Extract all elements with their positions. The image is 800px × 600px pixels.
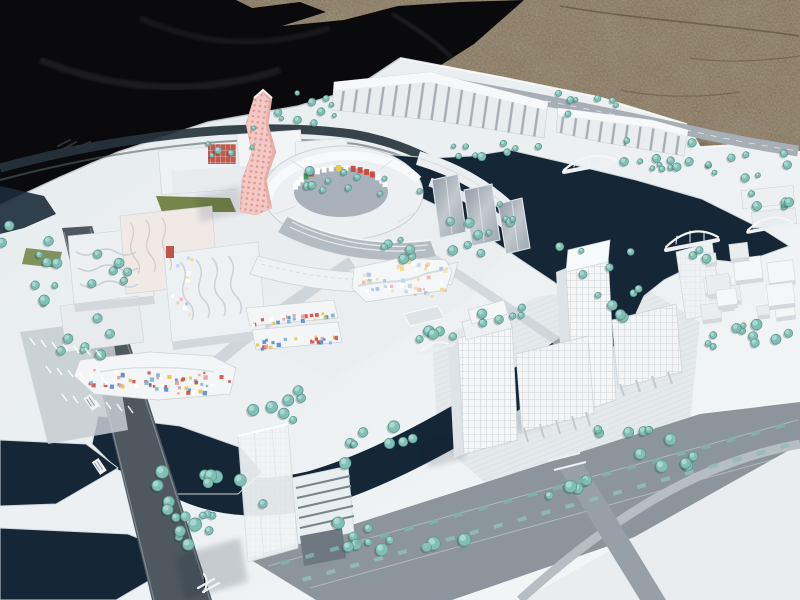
- tree-highlight: [94, 315, 99, 320]
- tree-highlight: [511, 217, 514, 220]
- mosaic-tile: [323, 317, 326, 320]
- tree-highlight: [713, 171, 716, 174]
- cube-roof: [766, 282, 795, 306]
- mosaic-tile: [175, 381, 179, 385]
- mosaic-tile: [117, 376, 120, 379]
- court-tile: [322, 167, 327, 173]
- tree-highlight: [568, 97, 571, 100]
- mosaic-tile: [287, 320, 291, 324]
- tree-highlight: [164, 497, 170, 503]
- cube-roof: [729, 242, 749, 259]
- mosaic-tile: [156, 377, 159, 380]
- tree-highlight: [163, 505, 168, 510]
- tree-highlight: [43, 259, 48, 264]
- mosaic-tile: [189, 376, 192, 379]
- mosaic-tile: [397, 266, 400, 269]
- mosaic-tile: [425, 264, 428, 267]
- court-tile: [329, 166, 334, 172]
- tree-highlight: [784, 162, 788, 166]
- mosaic-tile: [411, 261, 415, 265]
- tree-highlight: [756, 173, 758, 175]
- tree-highlight: [566, 111, 569, 114]
- tree-highlight: [450, 334, 454, 338]
- tree-highlight: [706, 341, 709, 344]
- tree-highlight: [750, 333, 755, 338]
- mosaic-tile: [363, 274, 366, 277]
- mosaic-tile: [256, 343, 260, 347]
- mosaic-tile: [93, 369, 95, 371]
- mosaic-tile: [114, 370, 118, 374]
- mosaic-tile: [187, 256, 190, 259]
- mosaic-tile: [293, 314, 296, 317]
- mosaic-tile: [301, 314, 306, 319]
- tree-highlight: [741, 323, 744, 326]
- red-vent: [166, 246, 174, 258]
- tree-highlight: [115, 259, 120, 264]
- court-tile: [370, 171, 375, 177]
- tree-highlight: [452, 144, 454, 146]
- tree-highlight: [668, 157, 672, 161]
- mosaic-tile: [362, 281, 366, 285]
- mosaic-tile: [310, 314, 314, 318]
- mosaic-tile: [155, 387, 159, 391]
- tree-highlight: [749, 191, 752, 194]
- mosaic-tile: [365, 289, 369, 293]
- tree-highlight: [5, 222, 10, 227]
- tree-highlight: [728, 155, 732, 159]
- mosaic-tile: [439, 267, 443, 271]
- mosaic-tile: [219, 375, 223, 379]
- tree-highlight: [399, 238, 402, 241]
- tree-highlight: [473, 153, 476, 156]
- tree-highlight: [53, 283, 56, 286]
- tree-highlight: [621, 158, 625, 162]
- mosaic-tile: [180, 298, 183, 301]
- tree-highlight: [690, 453, 694, 457]
- mosaic-tile: [261, 318, 264, 321]
- tree-highlight: [625, 138, 628, 141]
- mosaic-tile: [414, 294, 417, 297]
- mosaic-tile: [153, 385, 156, 388]
- tree-highlight: [409, 435, 413, 439]
- mosaic-tile: [184, 386, 188, 390]
- mosaic-tile: [121, 385, 125, 389]
- mosaic-tile: [368, 281, 371, 284]
- tree-highlight: [417, 336, 421, 340]
- mosaic-tile: [294, 337, 297, 340]
- scene-canvas: [0, 0, 800, 600]
- mosaic-tile: [284, 338, 287, 341]
- mosaic-tile: [424, 268, 427, 271]
- tree-highlight: [235, 475, 241, 481]
- tree-highlight: [636, 450, 641, 455]
- tree-highlight: [616, 311, 621, 316]
- tree-highlight: [206, 142, 208, 144]
- tree-highlight: [711, 344, 714, 347]
- tree-highlight: [182, 513, 187, 518]
- tree-highlight: [447, 218, 451, 222]
- tree-highlight: [382, 177, 385, 180]
- mosaic-tile: [375, 287, 379, 291]
- mosaic-tile: [186, 287, 188, 289]
- tree-highlight: [176, 527, 181, 532]
- tree-highlight: [64, 335, 69, 340]
- mosaic-tile: [206, 385, 208, 387]
- tree-highlight: [574, 98, 576, 100]
- tree-highlight: [280, 409, 285, 414]
- mosaic-tile: [414, 286, 418, 290]
- tree-highlight: [321, 187, 324, 190]
- tree-highlight: [752, 320, 757, 325]
- tree-highlight: [153, 481, 159, 487]
- mosaic-tile: [171, 295, 174, 298]
- tree-highlight: [646, 427, 650, 431]
- mosaic-tile: [186, 271, 190, 275]
- tree-highlight: [703, 255, 707, 259]
- tree-highlight: [579, 249, 582, 252]
- mosaic-tile: [228, 380, 231, 383]
- tree-highlight: [360, 428, 365, 433]
- tree-highlight: [690, 252, 694, 256]
- tree-highlight: [206, 527, 210, 531]
- tree-highlight: [513, 146, 516, 149]
- mosaic-tile: [383, 279, 386, 282]
- court-tile: [364, 169, 369, 175]
- court-tile: [299, 176, 304, 182]
- mosaic-tile: [400, 267, 404, 271]
- tree-highlight: [595, 96, 598, 99]
- tree-highlight: [249, 405, 255, 411]
- mosaic-tile: [132, 380, 135, 383]
- mosaic-tile: [167, 375, 171, 379]
- mosaic-tile: [203, 391, 208, 396]
- mosaic-tile: [252, 323, 255, 326]
- tree-highlight: [636, 286, 639, 289]
- mosaic-tile: [371, 288, 374, 291]
- tree-highlight: [173, 514, 177, 518]
- mosaic-tile: [210, 383, 213, 386]
- mosaic-tile: [417, 263, 421, 267]
- mosaic-tile: [147, 371, 150, 374]
- tree-highlight: [697, 247, 701, 251]
- mosaic-tile: [376, 278, 378, 280]
- mosaic-tile: [188, 313, 190, 315]
- tree-highlight: [504, 217, 507, 220]
- mosaic-tile: [427, 275, 431, 279]
- mosaic-tile: [401, 278, 405, 282]
- mosaic-tile: [272, 322, 275, 325]
- tree-highlight: [399, 438, 404, 443]
- mosaic-tile: [315, 337, 319, 341]
- tree-highlight: [475, 231, 479, 235]
- tree-highlight: [121, 278, 125, 282]
- tree-highlight: [352, 442, 355, 445]
- tree-highlight: [210, 154, 212, 156]
- tree-highlight: [742, 174, 746, 178]
- mosaic-tile: [329, 341, 332, 344]
- model-photo: [0, 0, 800, 600]
- tree-highlight: [324, 96, 327, 99]
- mosaic-tile: [161, 384, 164, 387]
- mosaic-tile: [391, 289, 394, 292]
- tree-highlight: [429, 330, 434, 335]
- tree-highlight: [625, 428, 630, 433]
- mosaic-tile: [269, 317, 273, 321]
- mosaic-tile: [128, 379, 131, 382]
- tree-highlight: [334, 518, 340, 524]
- cube-building: [729, 242, 750, 263]
- mosaic-tile: [144, 381, 148, 385]
- tree-highlight: [466, 219, 471, 224]
- tree-highlight: [215, 147, 219, 151]
- tree-highlight: [480, 320, 484, 324]
- tree-highlight: [260, 500, 264, 504]
- tree-highlight: [638, 159, 641, 162]
- tree-highlight: [346, 185, 349, 188]
- mosaic-tile: [269, 346, 273, 350]
- cube-roof: [756, 305, 769, 316]
- tree-highlight: [342, 170, 345, 173]
- mosaic-tile: [198, 390, 202, 394]
- mosaic-tile: [264, 345, 268, 349]
- tree-highlight: [295, 387, 300, 392]
- tree-highlight: [344, 543, 349, 548]
- tree-highlight: [772, 335, 777, 340]
- tree-highlight: [200, 513, 203, 516]
- mosaic-tile: [265, 339, 268, 342]
- tree-highlight: [365, 525, 369, 529]
- tree-highlight: [464, 144, 467, 147]
- mosaic-tile: [185, 279, 189, 283]
- mosaic-tile: [191, 390, 195, 394]
- tree-highlight: [660, 167, 663, 170]
- tree-highlight: [40, 296, 45, 301]
- tree-highlight: [385, 439, 390, 444]
- tree-highlight: [650, 166, 653, 169]
- tree-highlight: [377, 545, 383, 551]
- tree-highlight: [275, 110, 279, 114]
- mosaic-tile: [417, 278, 420, 281]
- mosaic-tile: [400, 283, 404, 287]
- tree-highlight: [32, 282, 36, 286]
- mosaic-tile: [287, 316, 291, 320]
- tree-highlight: [669, 165, 672, 168]
- tree-highlight: [326, 179, 329, 182]
- tree-highlight: [785, 198, 790, 203]
- mosaic-tile: [427, 293, 430, 296]
- tree-highlight: [465, 242, 469, 246]
- tree-highlight: [706, 162, 709, 165]
- cube-building: [716, 288, 738, 310]
- mosaic-tile: [320, 340, 323, 343]
- mosaic-tile: [114, 376, 117, 379]
- court-tile: [336, 165, 341, 171]
- tree-highlight: [94, 251, 98, 255]
- tree-highlight: [284, 396, 289, 401]
- mosaic-tile: [185, 303, 188, 306]
- tree-highlight: [382, 244, 385, 247]
- tree-highlight: [107, 330, 111, 334]
- mosaic-tile: [384, 285, 387, 288]
- mosaic-tile: [135, 384, 139, 388]
- tree-highlight: [58, 347, 62, 351]
- tree-highlight: [206, 471, 212, 477]
- tree-highlight: [496, 316, 500, 320]
- mosaic-tile: [293, 317, 296, 320]
- mosaic-tile: [333, 339, 336, 342]
- tree-highlight: [711, 332, 714, 335]
- mosaic-tile: [186, 391, 190, 395]
- mosaic-tile: [321, 312, 324, 315]
- mosaic-tile: [443, 268, 448, 273]
- mosaic-tile: [367, 273, 371, 277]
- cube-building: [766, 282, 796, 310]
- mosaic-tile: [198, 374, 200, 376]
- tree-highlight: [124, 269, 128, 273]
- tree-highlight: [733, 324, 738, 329]
- tree-highlight: [311, 120, 314, 123]
- tree-highlight: [653, 155, 657, 159]
- mosaic-tile: [301, 319, 305, 323]
- tree-highlight: [449, 246, 454, 251]
- cube-roof: [767, 260, 795, 284]
- tree-highlight: [252, 126, 254, 128]
- tree-highlight: [295, 117, 299, 121]
- tree-highlight: [330, 103, 332, 105]
- tree-highlight: [556, 243, 560, 247]
- tree-highlight: [366, 539, 370, 543]
- mosaic-tile: [195, 381, 199, 385]
- mosaic-tile: [276, 343, 281, 348]
- tree-highlight: [640, 427, 645, 432]
- tree-highlight: [341, 459, 347, 465]
- mosaic-tile: [178, 386, 181, 389]
- mosaic-tile: [440, 288, 444, 292]
- tree-highlight: [498, 202, 500, 204]
- mosaic-tile: [121, 373, 125, 377]
- mosaic-tile: [203, 372, 205, 374]
- mosaic-tile: [390, 285, 393, 288]
- tree-highlight: [267, 402, 273, 408]
- court-tile: [315, 168, 320, 174]
- tree-highlight: [501, 141, 504, 144]
- tree-highlight: [510, 313, 513, 316]
- mosaic-tile: [261, 347, 264, 350]
- mosaic-tile: [183, 306, 187, 310]
- tree-highlight: [306, 167, 310, 171]
- tree-highlight: [37, 252, 40, 255]
- tree-highlight: [478, 153, 482, 157]
- mosaic-tile: [177, 302, 180, 305]
- tree-highlight: [781, 150, 785, 154]
- mosaic-tile: [417, 288, 421, 292]
- tree-highlight: [110, 267, 114, 271]
- mosaic-tile: [366, 280, 368, 282]
- tree-highlight: [546, 492, 550, 496]
- tree-highlight: [595, 426, 599, 430]
- tree-highlight: [596, 293, 599, 296]
- tree-highlight: [53, 259, 58, 264]
- mosaic-tile: [323, 338, 326, 341]
- court-tile: [358, 167, 363, 173]
- tree-highlight: [89, 280, 93, 284]
- mosaic-tile: [184, 381, 187, 384]
- mosaic-tile: [423, 288, 425, 290]
- tree-highlight: [45, 237, 50, 242]
- tree-highlight: [478, 310, 483, 315]
- tree-highlight: [350, 533, 354, 537]
- tree-highlight: [81, 348, 84, 351]
- tree-highlight: [318, 109, 322, 113]
- mosaic-tile: [414, 269, 417, 272]
- tree-highlight: [752, 340, 756, 344]
- tree-highlight: [686, 158, 690, 162]
- tree-highlight: [608, 301, 613, 306]
- tree-highlight: [744, 152, 747, 155]
- mosaic-tile: [271, 341, 274, 344]
- cube-roof: [716, 288, 738, 306]
- tree-highlight: [556, 91, 559, 94]
- tree-highlight: [614, 103, 616, 105]
- tree-highlight: [378, 192, 381, 195]
- mosaic-tile: [182, 377, 185, 380]
- cube-building: [756, 305, 770, 320]
- court-tile: [351, 166, 356, 172]
- tree-highlight: [418, 189, 421, 192]
- tree-highlight: [400, 255, 405, 260]
- court-tile: [375, 174, 380, 180]
- tree-highlight: [504, 149, 507, 152]
- mosaic-tile: [150, 377, 155, 382]
- tree-highlight: [295, 91, 297, 93]
- tree-highlight: [190, 519, 197, 526]
- tree-highlight: [460, 535, 466, 541]
- mosaic-tile: [333, 335, 335, 337]
- tree-highlight: [280, 117, 282, 119]
- tree-highlight: [309, 182, 313, 186]
- mosaic-tile: [177, 392, 179, 394]
- tree-highlight: [580, 271, 584, 275]
- tree-highlight: [657, 461, 663, 467]
- tree-highlight: [610, 98, 613, 101]
- tree-highlight: [387, 537, 391, 541]
- tree-highlight: [407, 246, 412, 251]
- tree-highlight: [290, 417, 294, 421]
- tree-highlight: [229, 150, 232, 153]
- tree-highlight: [250, 145, 252, 147]
- mosaic-tile: [176, 264, 180, 268]
- tree-highlight: [478, 250, 482, 254]
- tree-highlight: [82, 343, 86, 347]
- tree-highlight: [456, 154, 459, 157]
- tree-highlight: [309, 99, 313, 103]
- tree-highlight: [753, 202, 758, 207]
- tree-highlight: [355, 174, 358, 177]
- tree-highlight: [333, 114, 335, 116]
- tree-highlight: [519, 313, 522, 316]
- mosaic-tile: [164, 387, 168, 391]
- mosaic-tile: [408, 284, 412, 288]
- tree-highlight: [607, 264, 611, 268]
- mosaic-tile: [431, 295, 434, 298]
- tree-highlight: [628, 249, 631, 252]
- mosaic-tile: [276, 320, 280, 324]
- mosaic-tile: [156, 373, 160, 377]
- tree-highlight: [566, 481, 572, 487]
- tree-highlight: [536, 144, 539, 147]
- mosaic-tile: [190, 258, 193, 261]
- tree-highlight: [689, 139, 693, 143]
